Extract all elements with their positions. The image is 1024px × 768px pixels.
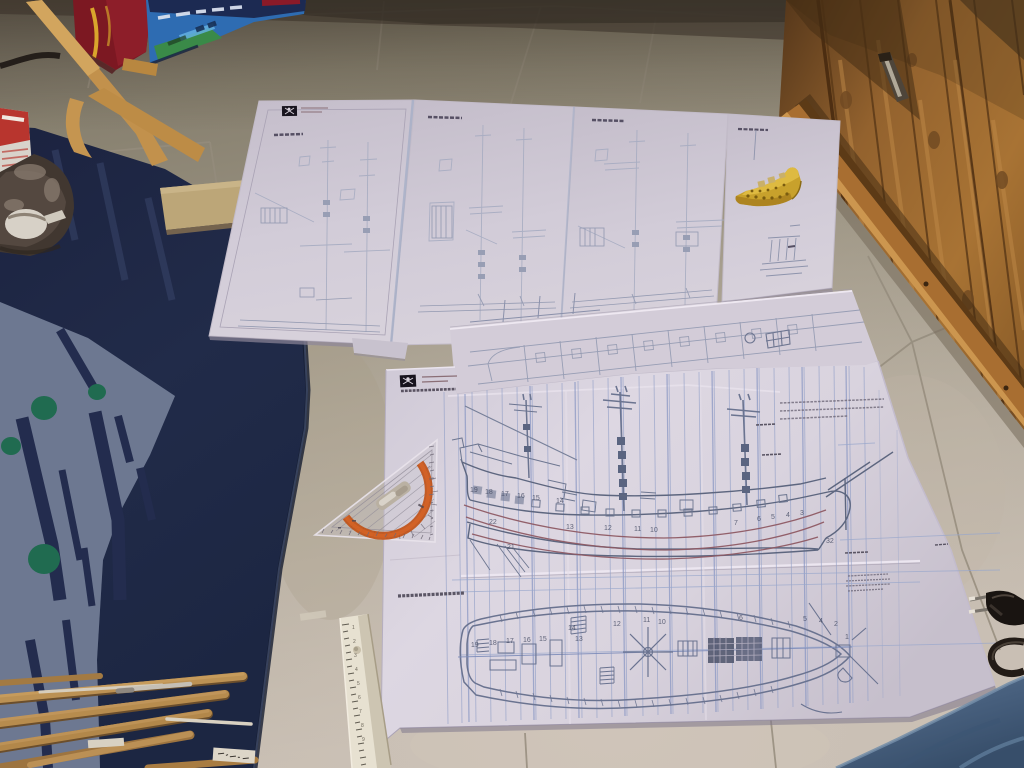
svg-text:1: 1 xyxy=(352,625,355,631)
svg-text:16: 16 xyxy=(517,493,525,500)
svg-text:2: 2 xyxy=(353,639,356,645)
svg-text:17: 17 xyxy=(501,491,509,498)
svg-text:14: 14 xyxy=(568,625,576,632)
svg-text:13: 13 xyxy=(566,524,574,531)
svg-text:17: 17 xyxy=(506,638,514,645)
svg-text:1: 1 xyxy=(845,634,849,641)
svg-text:6: 6 xyxy=(358,695,361,701)
svg-text:9: 9 xyxy=(362,737,365,743)
svg-text:5: 5 xyxy=(803,616,807,623)
svg-text:18: 18 xyxy=(489,640,497,647)
svg-text:8: 8 xyxy=(361,723,364,729)
svg-text:19: 19 xyxy=(470,487,478,494)
svg-text:3: 3 xyxy=(354,653,357,659)
svg-text:5: 5 xyxy=(357,681,360,687)
svg-text:21: 21 xyxy=(507,544,515,551)
svg-text:6: 6 xyxy=(757,516,761,523)
svg-text:19: 19 xyxy=(471,642,479,649)
svg-text:12: 12 xyxy=(613,621,621,628)
svg-text:4: 4 xyxy=(786,512,790,519)
svg-text:14: 14 xyxy=(556,498,564,505)
svg-text:4: 4 xyxy=(355,667,358,673)
svg-text:3: 3 xyxy=(800,510,804,517)
svg-text:32: 32 xyxy=(826,538,834,545)
svg-text:7: 7 xyxy=(359,709,362,715)
svg-text:15: 15 xyxy=(532,495,540,502)
svg-text:12: 12 xyxy=(604,525,612,532)
svg-text:16: 16 xyxy=(523,637,531,644)
svg-text:11: 11 xyxy=(634,526,641,533)
svg-text:5: 5 xyxy=(771,514,775,521)
svg-text:15: 15 xyxy=(539,636,547,643)
svg-text:11: 11 xyxy=(643,617,650,624)
svg-text:4: 4 xyxy=(819,618,823,625)
svg-text:22: 22 xyxy=(489,519,497,526)
svg-text:7: 7 xyxy=(734,520,738,527)
svg-text:10: 10 xyxy=(658,619,666,626)
svg-text:6: 6 xyxy=(739,615,743,622)
svg-text:10: 10 xyxy=(650,527,658,534)
svg-text:13: 13 xyxy=(575,636,583,643)
svg-text:18: 18 xyxy=(485,489,493,496)
svg-text:2: 2 xyxy=(834,621,838,628)
